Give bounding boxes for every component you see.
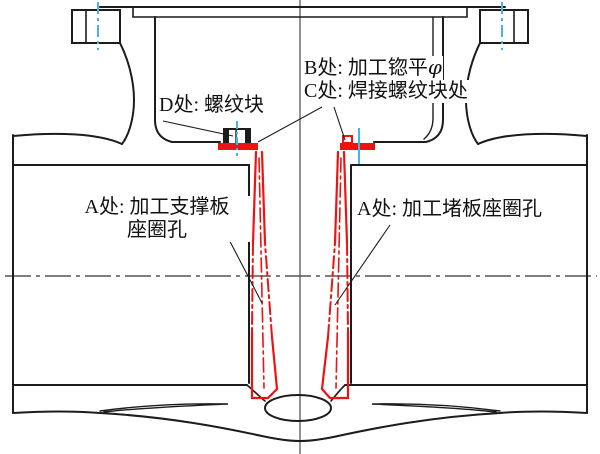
- label-c-text: C处: 焊接螺纹块处: [304, 80, 468, 102]
- bonnet-flange-right: [480, 10, 528, 43]
- label-c-welded-block: C处: 焊接螺纹块处: [303, 80, 469, 103]
- label-b-text: B处: 加工锪平: [304, 57, 428, 79]
- leader-c-left: [258, 107, 322, 142]
- label-a-right-blank-plate: A处: 加工堵板座圈孔: [356, 198, 543, 221]
- engineering-drawing: D处: 螺纹块 B处: 加工锪平φ C处: 焊接螺纹块处 A处: 加工支撑板 座…: [0, 0, 600, 454]
- phi-symbol: φ: [428, 55, 442, 79]
- bonnet-flange-left: [72, 10, 120, 43]
- label-d-text: D处: 螺纹块: [159, 94, 264, 116]
- leader-d: [163, 121, 233, 136]
- label-b-spotface: B处: 加工锪平φ: [303, 56, 443, 80]
- label-a-left-line2: 座圈孔: [65, 219, 249, 242]
- leader-c-right: [334, 107, 345, 140]
- seat-bore-left-highlight: [218, 143, 277, 398]
- label-a-right-text: A处: 加工堵板座圈孔: [357, 198, 542, 220]
- seat-bore-right-highlight: [322, 136, 375, 398]
- drain-boss: [265, 395, 331, 421]
- label-a-left-line1: A处: 加工支撑板: [85, 196, 230, 218]
- label-a-left-support-plate: A处: 加工支撑板 座圈孔: [64, 196, 250, 242]
- leader-a-right: [335, 225, 390, 305]
- label-d-thread-block: D处: 螺纹块: [158, 94, 265, 117]
